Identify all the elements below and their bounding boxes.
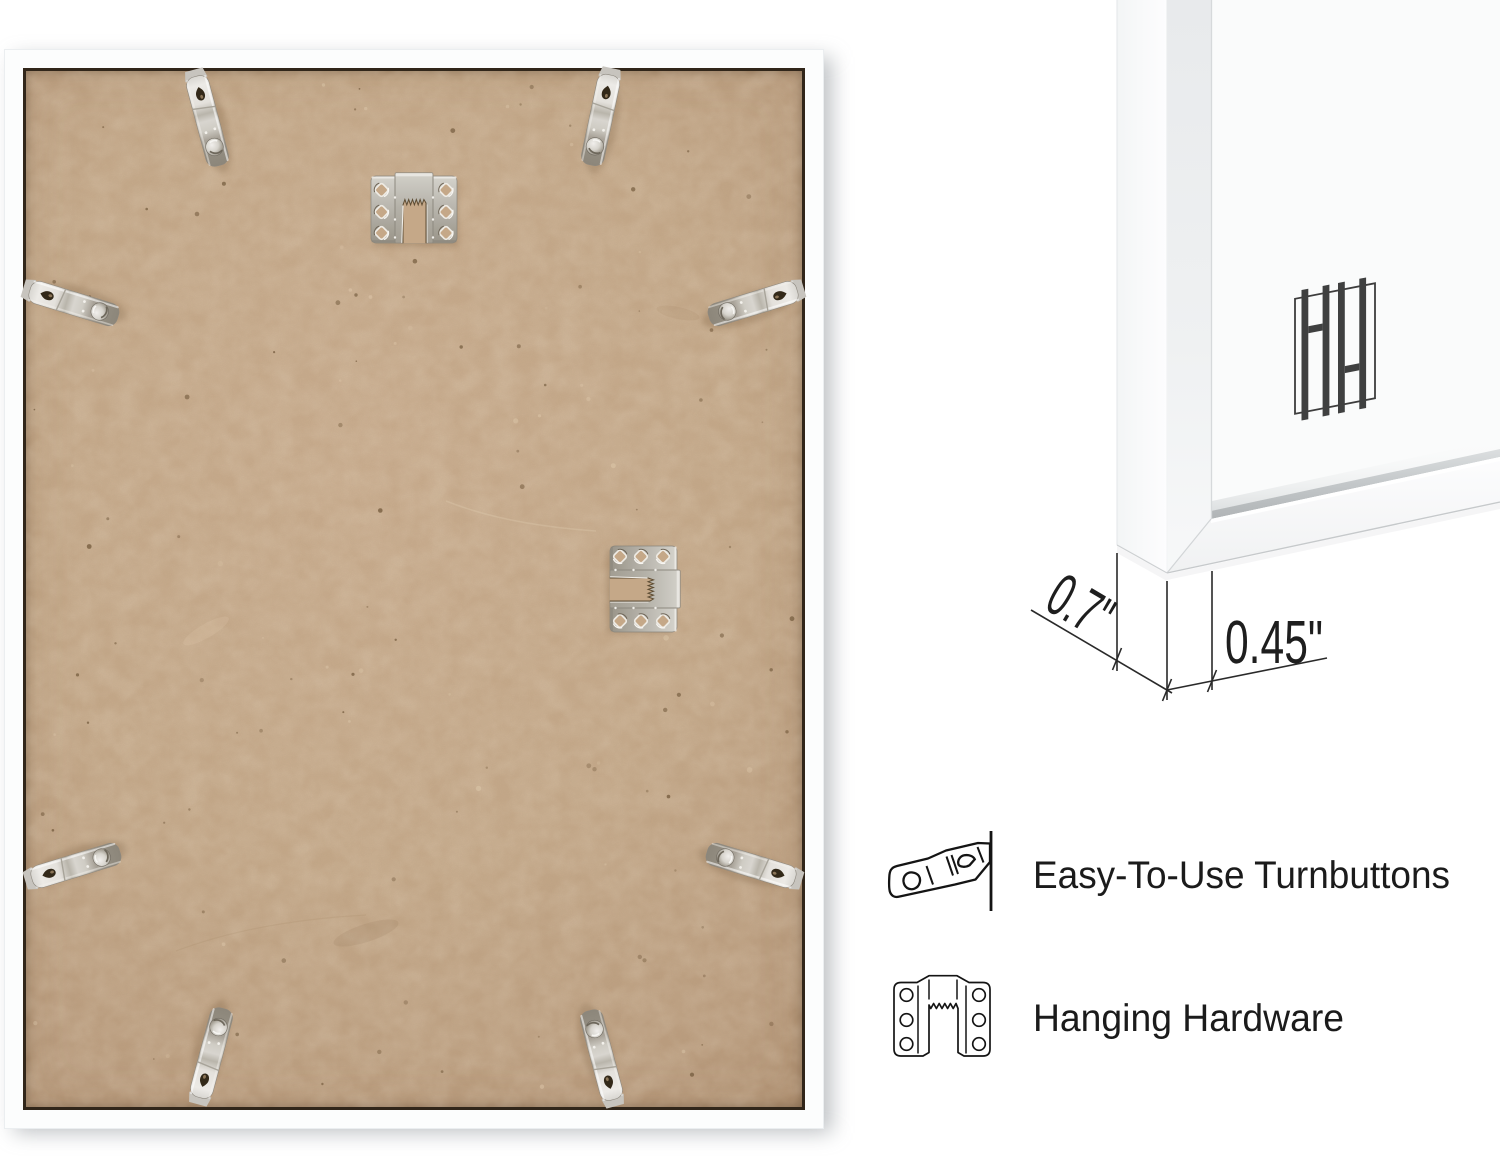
svg-text:Hanging Hardware: Hanging Hardware: [1033, 997, 1344, 1040]
svg-text:0.45": 0.45": [1225, 608, 1323, 676]
svg-text:0.7": 0.7": [1036, 560, 1126, 651]
svg-text:Easy-To-Use Turnbuttons: Easy-To-Use Turnbuttons: [1033, 854, 1450, 897]
